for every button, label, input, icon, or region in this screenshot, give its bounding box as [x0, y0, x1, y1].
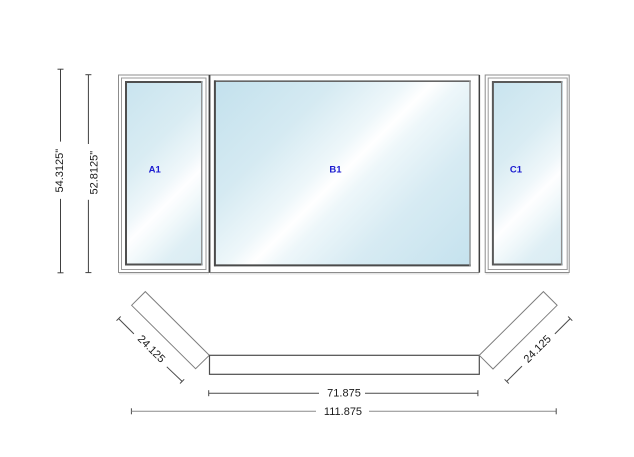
svg-text:111.875: 111.875	[324, 406, 362, 418]
svg-text:24.125: 24.125	[522, 333, 554, 365]
svg-text:52.8125": 52.8125"	[88, 151, 100, 195]
svg-text:54.3125": 54.3125"	[54, 149, 66, 193]
svg-text:C1: C1	[510, 164, 523, 175]
svg-text:A1: A1	[149, 164, 162, 175]
svg-text:B1: B1	[329, 164, 342, 175]
svg-text:24.125: 24.125	[135, 333, 167, 365]
svg-text:71.875: 71.875	[327, 388, 361, 400]
